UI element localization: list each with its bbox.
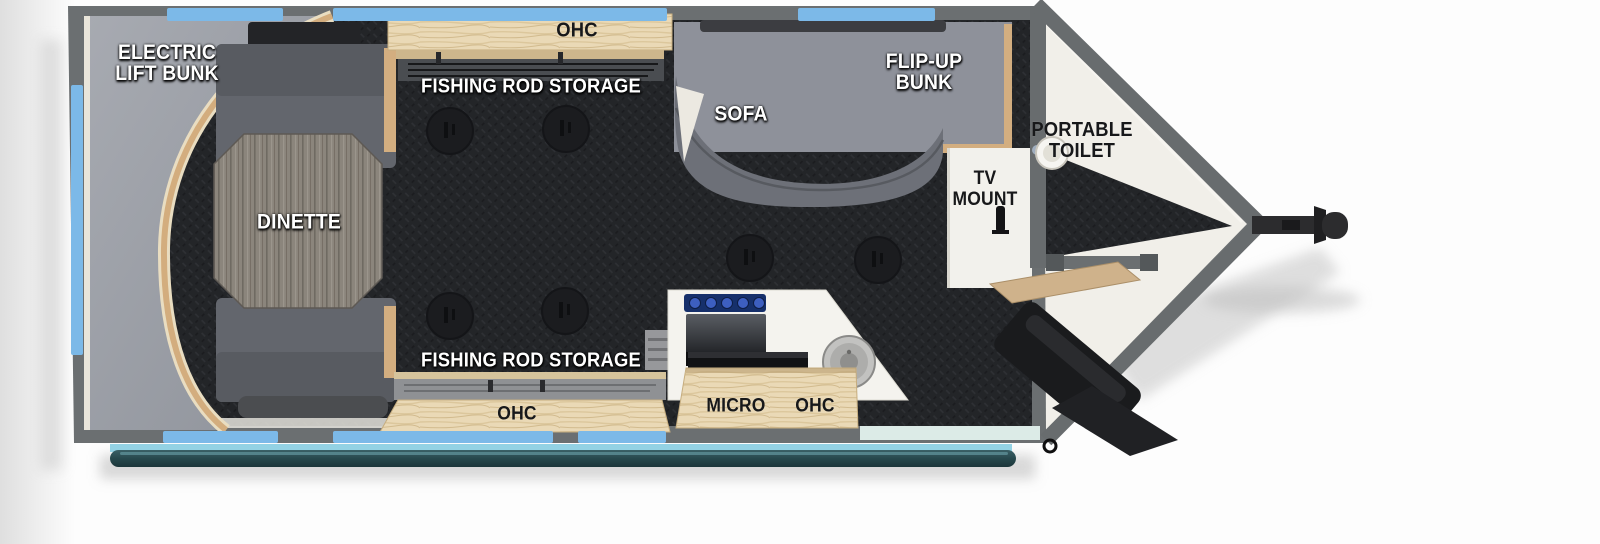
window-left xyxy=(71,85,83,355)
micro-ohc-cabinet xyxy=(676,368,858,428)
bench-skirt xyxy=(238,396,388,418)
dinette-table xyxy=(214,134,382,308)
hitch-coupler xyxy=(1322,212,1348,239)
window-top xyxy=(167,8,283,21)
rod-storage-shelf-bottom xyxy=(394,379,666,400)
dinette-bench-top-backrest xyxy=(216,44,396,96)
floorplan-graphic xyxy=(0,0,1600,544)
background-left-shade xyxy=(0,0,75,544)
flip-up-bunk-area xyxy=(674,22,1012,152)
fishing-hole xyxy=(542,288,588,334)
overhead-cabinet-top xyxy=(388,14,672,81)
window-bottom xyxy=(163,431,278,443)
hitch-tongue xyxy=(1252,206,1348,244)
dinette-bench-bottom-front xyxy=(216,352,396,402)
fishing-hole xyxy=(427,108,473,154)
rear-lower-glass-band xyxy=(860,426,1040,440)
floorplan-canvas: ELECTRIC LIFT BUNK OHC FISHING ROD STORA… xyxy=(0,0,1600,544)
fishing-hole xyxy=(727,235,773,281)
fishing-hole xyxy=(543,106,589,152)
tv-mount-icon-base xyxy=(992,230,1009,234)
bench-wood-trim-bottom xyxy=(384,306,396,378)
left-wall-inner-trim xyxy=(84,16,91,430)
window-top xyxy=(798,8,935,21)
overhead-cabinet-bottom xyxy=(380,372,670,432)
tv-mount-wall xyxy=(947,148,1032,288)
window-bottom xyxy=(578,431,666,443)
bench-wood-trim-top xyxy=(384,48,396,152)
fishing-hole xyxy=(855,237,901,283)
window-top xyxy=(333,8,667,21)
window-bottom xyxy=(333,431,553,443)
awning-roll xyxy=(110,444,1016,467)
tv-mount-icon xyxy=(996,206,1005,232)
dinette-group xyxy=(214,22,396,418)
fishing-hole xyxy=(427,293,473,339)
